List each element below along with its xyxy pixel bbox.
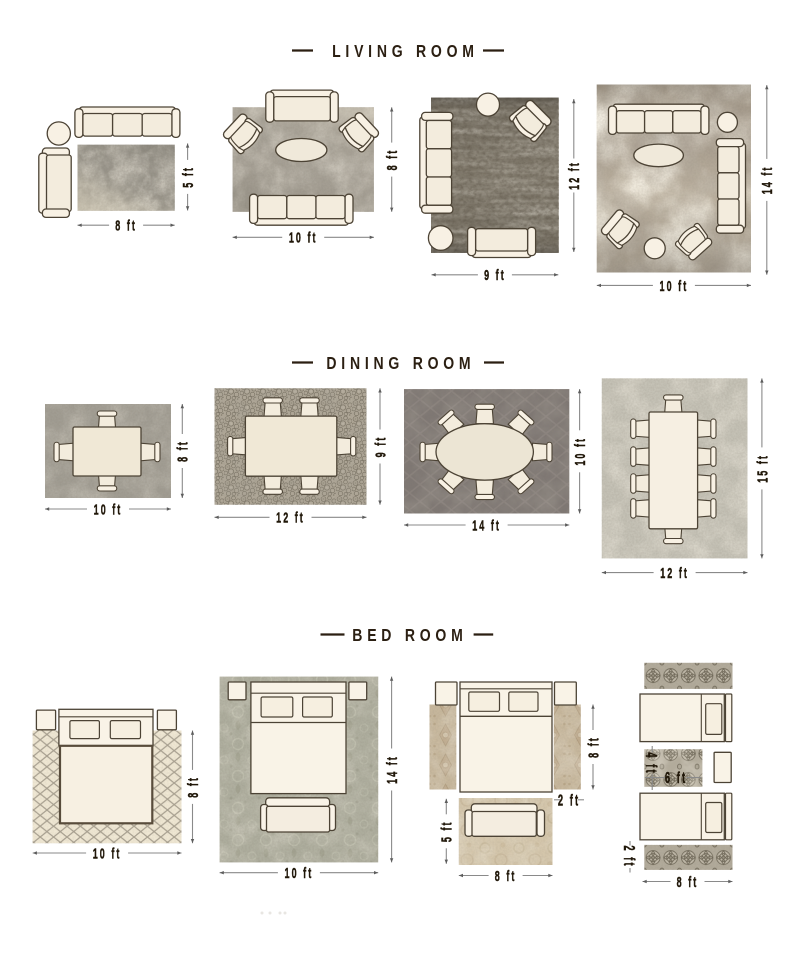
svg-text:6 ft: 6 ft <box>665 769 687 787</box>
svg-text:DINING ROOM: DINING ROOM <box>326 353 475 373</box>
svg-text:10 ft: 10 ft <box>572 437 589 466</box>
svg-text:5 ft: 5 ft <box>180 166 197 188</box>
svg-text:10 ft: 10 ft <box>93 845 122 862</box>
svg-text:12 ft: 12 ft <box>566 161 583 190</box>
svg-text:10 ft: 10 ft <box>285 865 314 882</box>
svg-text:9 ft: 9 ft <box>484 267 506 284</box>
svg-text:8 ft: 8 ft <box>384 149 401 171</box>
svg-text:2 ft: 2 ft <box>558 791 580 809</box>
svg-text:8 ft: 8 ft <box>115 217 137 234</box>
svg-text:12 ft: 12 ft <box>660 565 689 582</box>
svg-text:4 ft: 4 ft <box>642 752 660 774</box>
svg-text:14 ft: 14 ft <box>384 755 401 784</box>
svg-text:8 ft: 8 ft <box>677 874 699 891</box>
svg-text:12 ft: 12 ft <box>276 509 305 526</box>
svg-text:9 ft: 9 ft <box>372 436 389 458</box>
svg-text:5 ft: 5 ft <box>438 820 455 842</box>
svg-text:8 ft: 8 ft <box>174 440 191 462</box>
svg-text:14 ft: 14 ft <box>472 517 501 534</box>
svg-text:8 ft: 8 ft <box>495 868 517 885</box>
svg-text:8 ft: 8 ft <box>185 776 202 798</box>
svg-text:BED ROOM: BED ROOM <box>352 625 467 645</box>
svg-text:2 ft: 2 ft <box>620 845 638 867</box>
svg-text:8 ft: 8 ft <box>585 736 602 758</box>
svg-text:LIVING ROOM: LIVING ROOM <box>332 41 479 61</box>
svg-text:14 ft: 14 ft <box>759 166 776 195</box>
svg-text:15 ft: 15 ft <box>754 454 771 483</box>
svg-text:10 ft: 10 ft <box>94 501 123 518</box>
svg-text:10 ft: 10 ft <box>660 277 689 294</box>
svg-text:10 ft: 10 ft <box>289 229 318 246</box>
